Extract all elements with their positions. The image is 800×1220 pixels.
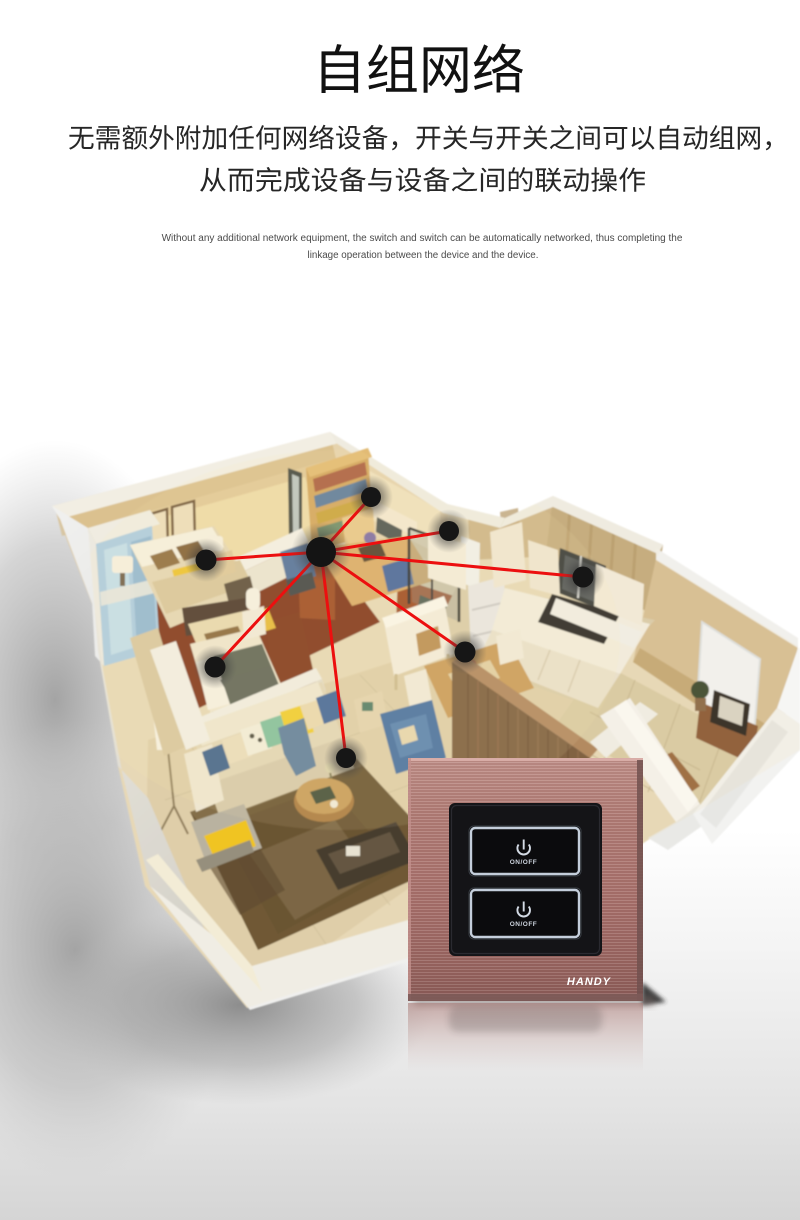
svg-text:ON/OFF: ON/OFF <box>510 921 538 928</box>
svg-text:HANDY: HANDY <box>567 976 612 988</box>
svg-text:Without any additional network: Without any additional network equipment… <box>162 233 683 244</box>
svg-text:ON/OFF: ON/OFF <box>510 859 538 866</box>
svg-text:linkage operation between the: linkage operation between the device and… <box>308 250 539 261</box>
